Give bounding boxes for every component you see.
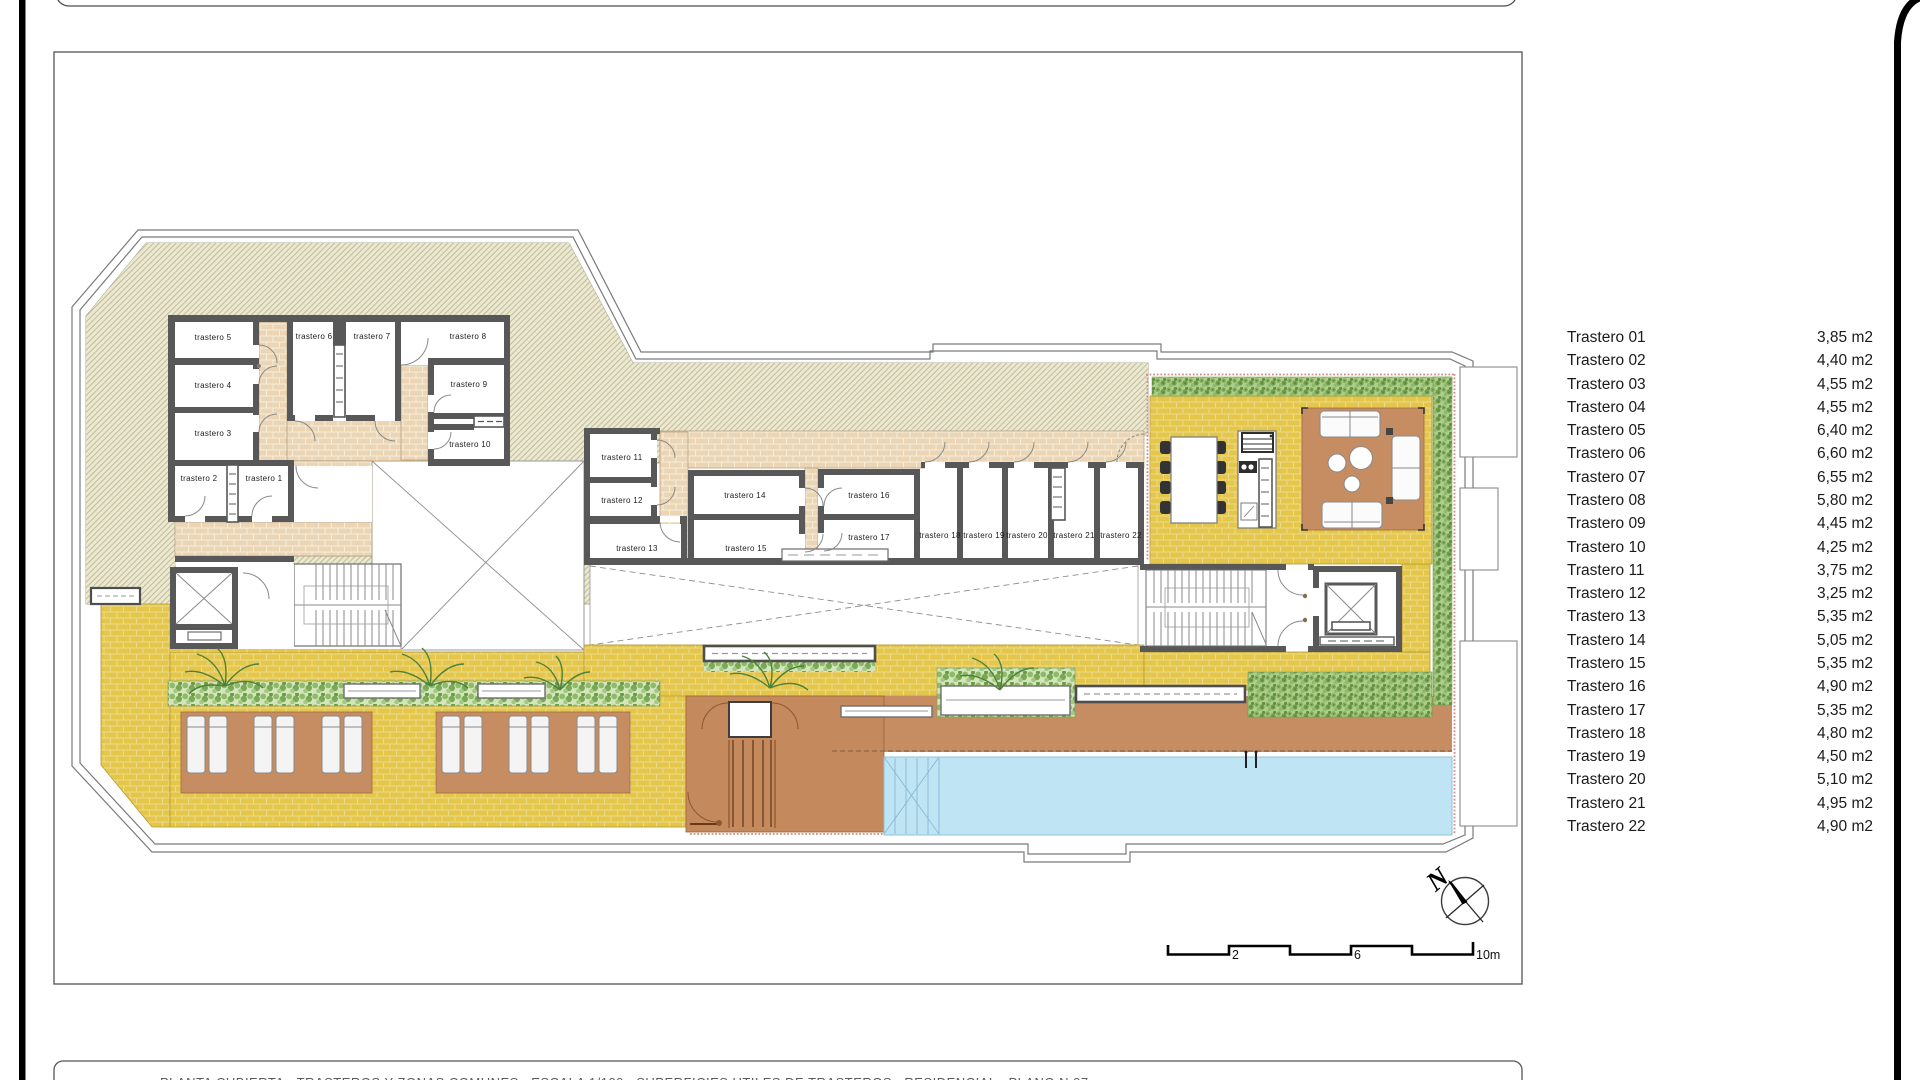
svg-text:Trastero 05: Trastero 05 xyxy=(1567,422,1646,439)
svg-text:4,90 m2: 4,90 m2 xyxy=(1817,678,1873,695)
svg-text:6: 6 xyxy=(1354,948,1361,962)
svg-text:Trastero 18: Trastero 18 xyxy=(1567,725,1646,742)
svg-text:trastero 6: trastero 6 xyxy=(296,332,333,341)
svg-text:trastero 13: trastero 13 xyxy=(616,544,658,553)
svg-text:Trastero 02: Trastero 02 xyxy=(1567,352,1646,369)
svg-text:trastero 2: trastero 2 xyxy=(181,474,218,483)
svg-text:trastero 16: trastero 16 xyxy=(848,491,890,500)
svg-text:5,80 m2: 5,80 m2 xyxy=(1817,492,1873,509)
svg-text:trastero 14: trastero 14 xyxy=(724,491,766,500)
svg-text:Trastero 15: Trastero 15 xyxy=(1567,655,1646,672)
svg-text:5,10 m2: 5,10 m2 xyxy=(1817,771,1873,788)
svg-text:PLANTA CUBIERTA - TRASTEROS: PLANTA CUBIERTA - TRASTEROS Y ZONAS COMU… xyxy=(160,1075,1089,1080)
svg-text:trastero 4: trastero 4 xyxy=(195,381,232,390)
svg-text:Trastero 19: Trastero 19 xyxy=(1567,748,1646,765)
svg-text:Trastero 17: Trastero 17 xyxy=(1567,702,1646,719)
svg-text:Trastero 01: Trastero 01 xyxy=(1567,329,1646,346)
svg-text:Trastero 04: Trastero 04 xyxy=(1567,399,1646,416)
svg-text:trastero 5: trastero 5 xyxy=(195,333,232,342)
svg-text:Trastero 10: Trastero 10 xyxy=(1567,539,1646,556)
svg-text:4,90 m2: 4,90 m2 xyxy=(1817,818,1873,835)
svg-text:3,25 m2: 3,25 m2 xyxy=(1817,585,1873,602)
svg-text:trastero 8: trastero 8 xyxy=(450,332,487,341)
svg-text:trastero 9: trastero 9 xyxy=(451,380,488,389)
svg-text:3,75 m2: 3,75 m2 xyxy=(1817,562,1873,579)
svg-text:trastero 3: trastero 3 xyxy=(195,429,232,438)
svg-text:trastero 22: trastero 22 xyxy=(1100,531,1142,540)
svg-text:4,40 m2: 4,40 m2 xyxy=(1817,352,1873,369)
svg-text:trastero 7: trastero 7 xyxy=(354,332,391,341)
svg-text:Trastero 13: Trastero 13 xyxy=(1567,608,1646,625)
svg-text:trastero 20: trastero 20 xyxy=(1006,531,1048,540)
svg-text:4,55 m2: 4,55 m2 xyxy=(1817,399,1873,416)
svg-text:3,85 m2: 3,85 m2 xyxy=(1817,329,1873,346)
svg-text:4,45 m2: 4,45 m2 xyxy=(1817,515,1873,532)
svg-text:trastero 18: trastero 18 xyxy=(919,531,961,540)
svg-text:Trastero 16: Trastero 16 xyxy=(1567,678,1646,695)
svg-text:10m: 10m xyxy=(1476,948,1500,962)
svg-text:Trastero 21: Trastero 21 xyxy=(1567,795,1646,812)
svg-text:Trastero 12: Trastero 12 xyxy=(1567,585,1646,602)
svg-text:trastero 11: trastero 11 xyxy=(602,453,643,462)
svg-text:5,05 m2: 5,05 m2 xyxy=(1817,632,1873,649)
svg-text:Trastero 14: Trastero 14 xyxy=(1567,632,1646,649)
svg-text:trastero 12: trastero 12 xyxy=(601,496,643,505)
svg-text:trastero 1: trastero 1 xyxy=(246,474,283,483)
svg-text:6,55 m2: 6,55 m2 xyxy=(1817,469,1873,486)
svg-text:2: 2 xyxy=(1232,948,1239,962)
svg-text:5,35 m2: 5,35 m2 xyxy=(1817,608,1873,625)
svg-text:4,95 m2: 4,95 m2 xyxy=(1817,795,1873,812)
svg-text:Trastero 11: Trastero 11 xyxy=(1567,562,1645,579)
svg-text:Trastero 03: Trastero 03 xyxy=(1567,376,1646,393)
svg-text:trastero 21: trastero 21 xyxy=(1053,531,1095,540)
svg-text:Trastero 09: Trastero 09 xyxy=(1567,515,1646,532)
svg-text:5,35 m2: 5,35 m2 xyxy=(1817,655,1873,672)
svg-text:4,25 m2: 4,25 m2 xyxy=(1817,539,1873,556)
svg-text:Trastero 20: Trastero 20 xyxy=(1567,771,1646,788)
svg-text:trastero 10: trastero 10 xyxy=(449,440,491,449)
svg-text:Trastero 22: Trastero 22 xyxy=(1567,818,1646,835)
svg-text:6,40 m2: 6,40 m2 xyxy=(1817,422,1873,439)
svg-text:trastero 17: trastero 17 xyxy=(848,533,890,542)
svg-text:Trastero 08: Trastero 08 xyxy=(1567,492,1646,509)
svg-text:4,50 m2: 4,50 m2 xyxy=(1817,748,1873,765)
svg-text:trastero 19: trastero 19 xyxy=(963,531,1005,540)
svg-text:Trastero 06: Trastero 06 xyxy=(1567,445,1646,462)
svg-text:trastero 15: trastero 15 xyxy=(725,544,767,553)
svg-text:4,80 m2: 4,80 m2 xyxy=(1817,725,1873,742)
svg-text:Trastero 07: Trastero 07 xyxy=(1567,469,1646,486)
svg-text:5,35 m2: 5,35 m2 xyxy=(1817,702,1873,719)
svg-text:6,60 m2: 6,60 m2 xyxy=(1817,445,1873,462)
svg-text:4,55 m2: 4,55 m2 xyxy=(1817,376,1873,393)
